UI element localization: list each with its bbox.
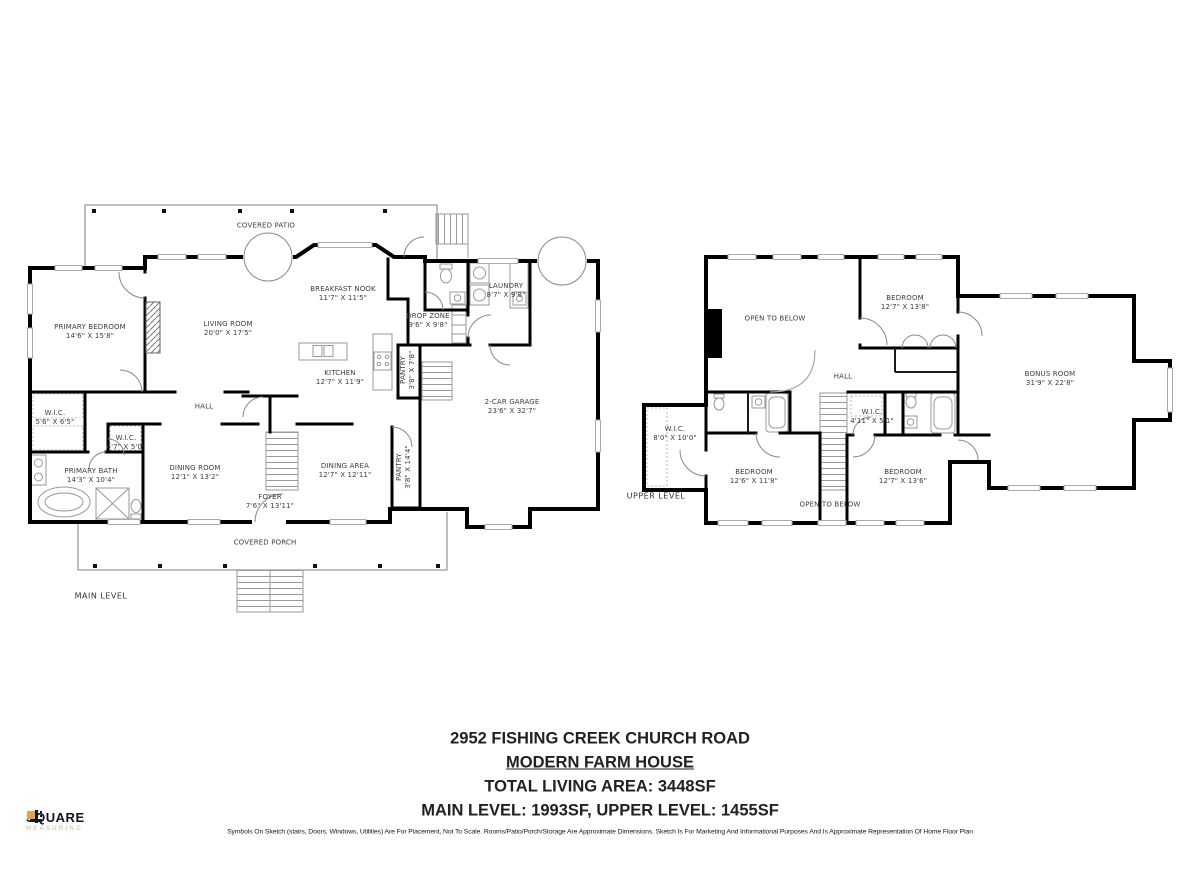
label-covered-porch: COVERED PORCH <box>234 539 297 548</box>
label-hall-upper: HALL <box>834 373 852 382</box>
total-area-title: TOTAL LIVING AREA: 3448SF <box>484 778 715 797</box>
chimney-block <box>704 309 722 358</box>
label-covered-patio: COVERED PATIO <box>237 222 295 231</box>
label-bonus-room: BONUS ROOM 31'9" X 22'8" <box>1025 370 1076 388</box>
floor-plan-sheet: COVERED PATIO PRIMARY BEDROOM 14'6" X 15… <box>0 0 1200 883</box>
label-drop-zone: DROP ZONE 9'6" X 9'8" <box>406 312 450 330</box>
label-wic-left: W.I.C. 8'0" X 10'0" <box>653 425 697 443</box>
label-foyer: FOYER 7'6" X 13'11" <box>246 493 294 511</box>
label-pantry-tall: PANTRY 3'8" X 14'4" <box>395 445 413 489</box>
hall-curved-rail <box>770 350 815 392</box>
level-areas-title: MAIN LEVEL: 1993SF, UPPER LEVEL: 1455SF <box>421 802 779 821</box>
label-hall-main: HALL <box>195 403 213 412</box>
label-wic-bedroom: W.I.C. 5'6" X 6'5" <box>36 409 75 427</box>
label-breakfast-nook: BREAKFAST NOOK 11'7" X 11'5" <box>310 285 376 303</box>
label-main-level: MAIN LEVEL <box>75 592 128 601</box>
label-primary-bedroom: PRIMARY BEDROOM 14'6" X 15'8" <box>54 323 126 341</box>
label-open-below-bottom: OPEN TO BELOW <box>800 501 861 510</box>
label-dining-area: DINING AREA 12'7" X 12'11" <box>319 462 372 480</box>
label-bedroom-right: BEDROOM 12'7" X 13'6" <box>879 468 927 486</box>
label-primary-bath: PRIMARY BATH 14'3" X 10'4" <box>64 467 117 485</box>
label-garage: 2-CAR GARAGE 23'6" X 32'7" <box>485 398 540 416</box>
label-living-room: LIVING ROOM 20'0" X 17'5" <box>203 320 252 338</box>
address-title: 2952 FISHING CREEK CHURCH ROAD <box>450 730 750 749</box>
label-dining-room: DINING ROOM 12'1" X 13'2" <box>169 464 220 482</box>
square-measuring-logo: SQUARE MEASURING <box>26 810 85 832</box>
label-bedroom-left: BEDROOM 12'6" X 11'8" <box>730 468 778 486</box>
style-name-title: MODERN FARM HOUSE <box>506 754 694 773</box>
label-kitchen: KITCHEN 12'7" X 11'9" <box>316 369 364 387</box>
label-open-below-top: OPEN TO BELOW <box>745 315 806 324</box>
label-wic-hall: W.I.C. 4'7" X 5'0" <box>107 434 146 452</box>
label-bedroom-top: BEDROOM 12'7" X 13'8" <box>881 294 929 312</box>
exterior-walls <box>30 245 1170 527</box>
label-wic-center: W.I.C. 4'11" X 5'1" <box>850 408 894 426</box>
label-laundry: LAUNDRY 8'7" X 9'8" <box>487 282 526 300</box>
measuring-square-icon <box>26 810 44 828</box>
fireplace-hatch <box>146 302 160 353</box>
label-pantry-small: PANTRY 3'8" X 7'8" <box>399 351 417 390</box>
disclaimer-text: Symbols On Sketch (stairs, Doors, Window… <box>227 829 973 836</box>
floor-plan-drawing <box>0 0 1200 883</box>
label-upper-level: UPPER LEVEL <box>627 492 686 501</box>
